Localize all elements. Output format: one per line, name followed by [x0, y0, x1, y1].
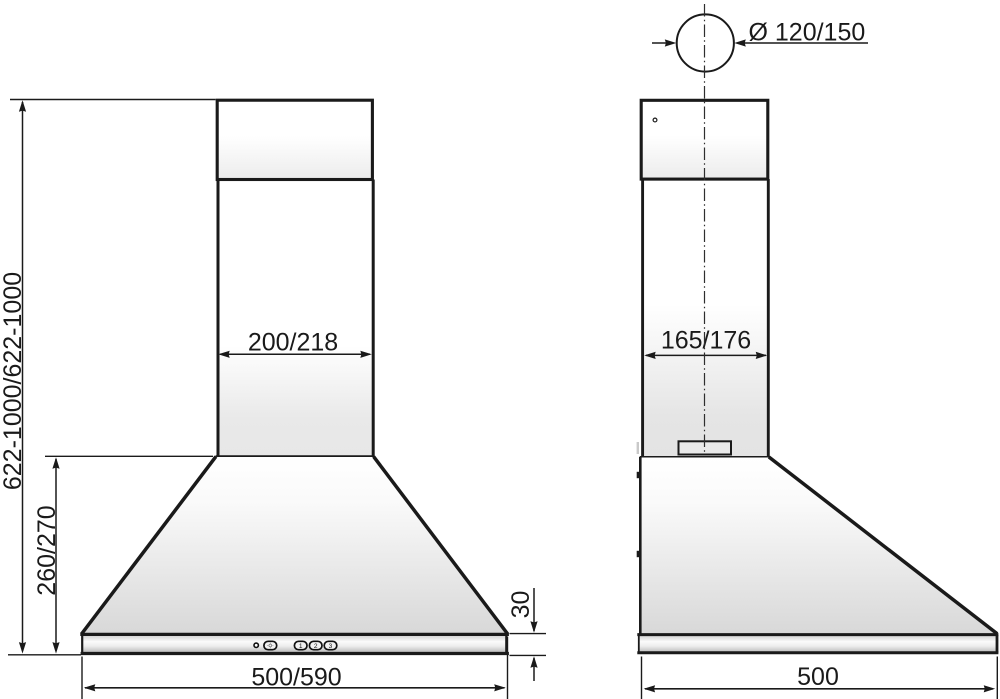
- svg-text:500: 500: [797, 663, 839, 691]
- svg-text:622-1000/622-1000: 622-1000/622-1000: [0, 272, 27, 490]
- svg-text:165/176: 165/176: [661, 327, 751, 355]
- svg-text:2: 2: [314, 643, 318, 650]
- svg-text:Ø 120/150: Ø 120/150: [749, 19, 866, 47]
- svg-text:1: 1: [299, 643, 303, 650]
- svg-text:3: 3: [329, 643, 333, 650]
- svg-text:260/270: 260/270: [33, 505, 61, 595]
- svg-text:500/590: 500/590: [251, 663, 341, 691]
- svg-text:30: 30: [507, 591, 535, 619]
- svg-text:200/218: 200/218: [248, 328, 338, 356]
